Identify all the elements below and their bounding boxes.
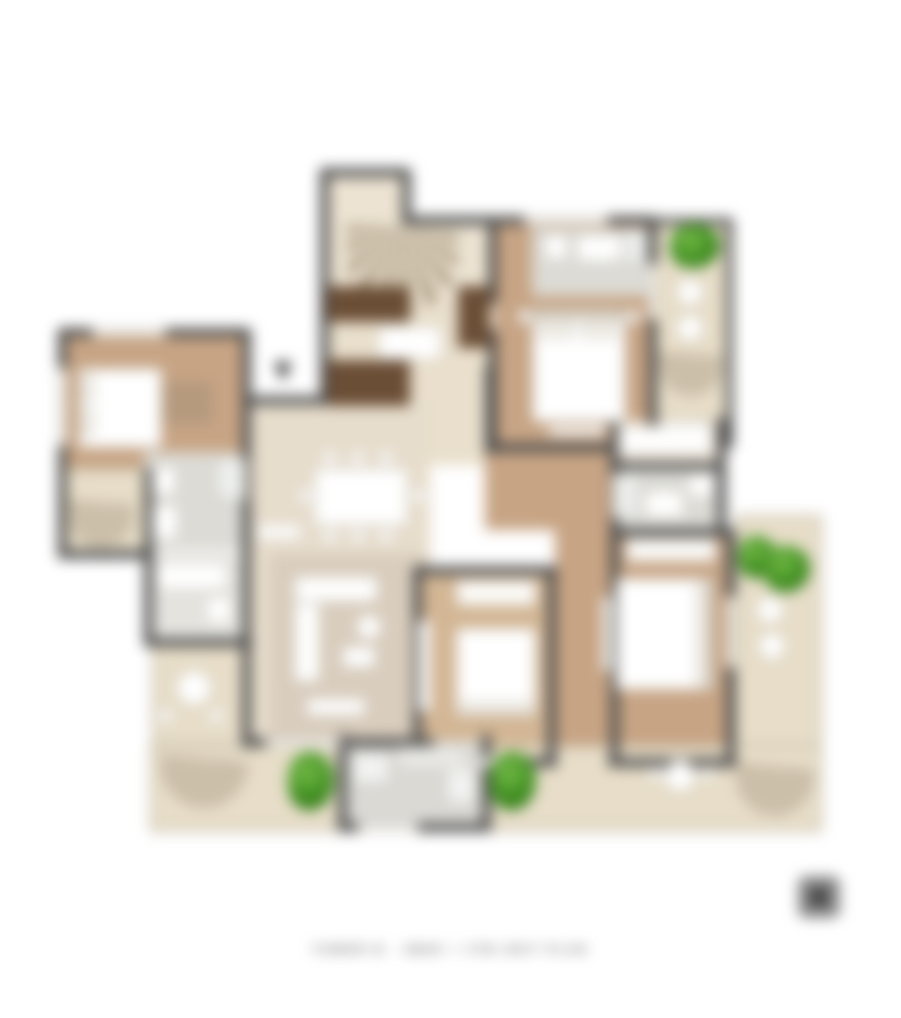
wall [726,218,733,448]
window [358,823,418,832]
window [92,328,166,337]
sofa-seat [294,576,378,602]
dining-chair-2 [350,450,366,466]
bed-master-headboard [708,578,714,690]
wall [717,418,726,536]
table-terrace-bottom [664,760,696,792]
dining-table [314,468,408,526]
plan-caption: TOWER B - 3BHK + 3TB UNIT PLAN [0,944,901,956]
wall [610,462,725,470]
kitchen-counter-top [328,286,410,322]
tv-console-living [306,698,366,716]
wall [547,566,556,766]
kitchen-counter-low [328,360,410,406]
kitchen-island [378,326,442,360]
bed-1-pillow-2 [80,408,94,436]
vanity-4 [644,490,684,518]
entry-arrow [274,362,292,382]
wall [402,172,411,222]
toilet-3 [544,234,568,260]
dining-chair-1 [322,450,338,466]
dining-chair-7 [298,488,314,504]
wall [485,366,494,454]
vanity-2 [156,562,228,590]
toilet-2 [206,596,232,624]
chair-balcony-2a [676,278,704,306]
brand-logo-mark [810,888,828,906]
chair-balcony-2b [676,314,704,342]
kitchen-counter-right [458,286,490,348]
wardrobe-1 [162,382,212,424]
shower-3 [622,230,648,264]
toilet-1 [152,466,176,496]
wall [338,734,347,832]
chair-terrace-bottom-1 [700,766,715,781]
window [648,264,657,320]
coffee-table [342,646,376,668]
vanity-1 [152,504,178,540]
bed-2-pillow-1 [538,322,574,338]
nightstand-2a [518,310,531,323]
wall [144,554,153,642]
bed-2-pillow-2 [582,322,618,338]
shower-1 [216,458,246,500]
wall [320,168,410,177]
wall [58,550,154,559]
brand-logo [798,876,840,918]
window [726,596,735,668]
window [524,216,608,225]
wall [144,638,252,647]
dining-chair-3 [378,450,394,466]
washer-utility [352,752,390,784]
shower-4 [612,474,640,518]
bed-1-pillow [80,374,94,402]
table-terrace-left [176,670,212,706]
dining-chair-8 [410,488,426,504]
chair-terrace-left-1 [158,708,174,724]
chair-terrace-left-2 [208,708,224,724]
dining-chair-5 [350,528,366,544]
wall [415,566,557,575]
wall [648,220,657,452]
crockery-unit [256,524,302,540]
sofa-chaise [294,602,320,682]
wall [610,528,735,537]
bed-3-pillows [460,702,532,714]
pouf [356,614,382,640]
bed-2-headboard [532,308,626,320]
tv-unit-3 [418,620,431,712]
wardrobe-master [626,538,716,562]
floor-plan [58,168,822,832]
window [266,738,342,747]
wall [242,328,251,748]
bed-master-pillows [696,582,708,686]
chair-terrace-right-1 [756,596,784,624]
sink-utility [396,746,468,770]
dining-chair-6 [378,528,394,544]
utility-cabinet [446,768,476,804]
bench-master [602,596,612,672]
vanity-3 [576,234,622,262]
nightstand-2b [627,310,640,323]
toilet-4 [688,474,714,498]
blurred-floorplan-screenshot: TOWER B - 3BHK + 3TB UNIT PLAN [0,0,901,1018]
window [58,368,67,446]
chair-terrace-right-2 [758,632,786,660]
wardrobe-3 [456,580,536,606]
dressing-desk [618,426,712,454]
chair-terrace-bottom-2 [648,766,663,781]
dining-chair-4 [322,528,338,544]
bed-2-bench [548,426,606,436]
